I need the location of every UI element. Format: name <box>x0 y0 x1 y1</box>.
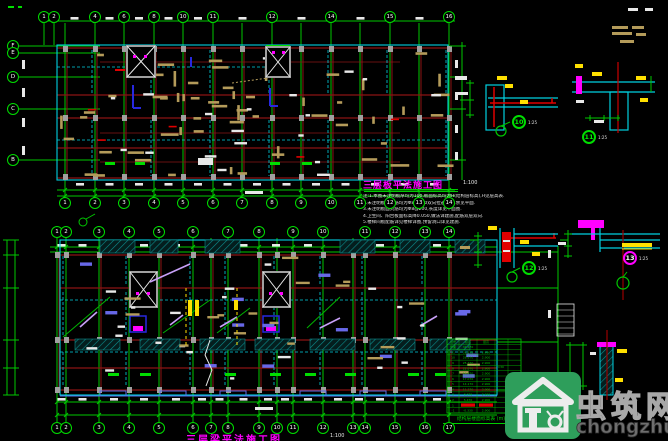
axis-bubble: 11 <box>207 11 219 23</box>
svg-text:层高: 层高 <box>483 339 489 344</box>
axis-bubble: 12 <box>384 197 396 209</box>
detail-bubble-13: 13 <box>623 251 637 265</box>
svg-text:8.370: 8.370 <box>464 393 473 397</box>
axis-bubble: 8 <box>266 197 278 209</box>
axis-bubble: 11 <box>354 197 366 209</box>
axis-bubble: 8 <box>253 226 265 238</box>
svg-text:25.770: 25.770 <box>463 361 474 365</box>
svg-text:2.900: 2.900 <box>482 377 491 381</box>
svg-text:4: 4 <box>452 387 454 391</box>
axis-bubble: 2 <box>60 422 72 434</box>
plan2-scale: 1:100 <box>330 433 344 439</box>
axis-bubble: 7 <box>222 226 234 238</box>
axis-bubble: 5 <box>153 422 165 434</box>
svg-text:28.670: 28.670 <box>463 356 474 360</box>
svg-text:2.900: 2.900 <box>482 409 491 413</box>
axis-bubble: 7 <box>236 197 248 209</box>
axis-bubble: 2 <box>89 197 101 209</box>
axis-bubble: 6 <box>187 226 199 238</box>
house-icon <box>505 372 581 439</box>
svg-text:17.070: 17.070 <box>463 377 474 381</box>
svg-text:5.470: 5.470 <box>464 398 473 402</box>
note-line: 4.卫生间、阳台板面标高降0.050,做法详建施,配筋双层双向. <box>363 214 568 221</box>
svg-text:层号: 层号 <box>450 339 456 344</box>
axis-bubble: 4 <box>123 226 135 238</box>
axis-bubble: 8 <box>222 422 234 434</box>
plan1-title-underline2 <box>364 191 458 192</box>
axis-bubble: 15 <box>384 11 396 23</box>
axis-bubble: 12 <box>266 11 278 23</box>
detail-scale: 1:25 <box>639 256 648 261</box>
svg-text:屋面: 屋面 <box>450 344 456 349</box>
svg-text:8: 8 <box>452 366 454 370</box>
plan1-scale: 1:100 <box>463 180 477 186</box>
detail-scale: 1:25 <box>538 266 547 271</box>
axis-bubble: 6 <box>187 422 199 434</box>
axis-bubble: 14 <box>325 11 337 23</box>
axis-bubble: 9 <box>287 226 299 238</box>
axis-bubble: 10 <box>317 226 329 238</box>
cad-canvas: 层号标高层高屋面34.4701131.5702.9001028.6702.900… <box>0 0 668 441</box>
axis-bubble: 12 <box>317 422 329 434</box>
axis-bubble: 6 <box>118 11 130 23</box>
axis-bubble: 4 <box>89 11 101 23</box>
svg-text:1: 1 <box>452 403 454 407</box>
svg-text:11: 11 <box>451 350 455 354</box>
svg-text:11.270: 11.270 <box>463 387 474 391</box>
svg-text:2.900: 2.900 <box>482 382 491 386</box>
axis-bubble: 6 <box>207 197 219 209</box>
svg-text:14.170: 14.170 <box>463 382 474 386</box>
plan2-title: 三层梁平法施工图 <box>186 431 282 441</box>
axis-bubble: 7 <box>205 422 217 434</box>
axis-bubble: 14 <box>443 226 455 238</box>
axis-bubble: 3 <box>118 197 130 209</box>
axis-bubble: 15 <box>389 422 401 434</box>
axis-bubble: 9 <box>253 422 265 434</box>
axis-bubble: 10 <box>325 197 337 209</box>
svg-text:2.900: 2.900 <box>482 361 491 365</box>
detail-scale: 1:25 <box>528 120 537 125</box>
watermark-site-url[interactable]: chongzhu.cn <box>576 417 668 438</box>
caption-text: 结构层楼面标高表 <box>457 417 495 422</box>
svg-text:2.900: 2.900 <box>482 398 491 402</box>
svg-text:19.970: 19.970 <box>463 372 474 376</box>
detail-scale: 1:25 <box>598 135 607 140</box>
svg-text:2.900: 2.900 <box>482 366 491 370</box>
svg-text:2.900: 2.900 <box>482 393 491 397</box>
axis-bubble: 3 <box>93 226 105 238</box>
axis-bubble: 17 <box>443 422 455 434</box>
detail-bubble-11: 11 <box>582 130 596 144</box>
note-line: 3.未注明板面负筋均为Φ8@200,长度详见平面图. <box>363 207 568 214</box>
svg-text:2.900: 2.900 <box>482 387 491 391</box>
axis-bubble: 16 <box>443 11 455 23</box>
svg-text:5: 5 <box>452 382 454 386</box>
axis-bubble: 8 <box>148 11 160 23</box>
axis-bubble: E <box>7 47 19 59</box>
svg-text:34.470: 34.470 <box>463 345 474 349</box>
axis-bubble: 11 <box>287 422 299 434</box>
svg-text:22.870: 22.870 <box>463 366 474 370</box>
detail-bubble-12: 12 <box>522 261 536 275</box>
chongzhu-logo[interactable] <box>505 372 581 439</box>
axis-bubble: 12 <box>389 226 401 238</box>
caption-unit: (m) <box>497 417 505 422</box>
svg-text:2.900: 2.900 <box>482 350 491 354</box>
axis-bubble: 10 <box>271 422 283 434</box>
svg-text:7: 7 <box>452 372 454 376</box>
axis-bubble: 5 <box>153 226 165 238</box>
svg-text:2.900: 2.900 <box>482 356 491 360</box>
svg-text:-1: -1 <box>452 409 455 413</box>
axis-bubble: 9 <box>295 197 307 209</box>
svg-text:9: 9 <box>452 361 454 365</box>
axis-bubble: 11 <box>359 226 371 238</box>
axis-bubble: D <box>7 71 19 83</box>
svg-text:2.900: 2.900 <box>482 372 491 376</box>
axis-bubble: 10 <box>177 11 189 23</box>
axis-bubble: 14 <box>443 197 455 209</box>
svg-text:2.570: 2.570 <box>464 403 473 407</box>
axis-bubble: 16 <box>419 422 431 434</box>
axis-bubble: 13 <box>413 197 425 209</box>
svg-text:标高: 标高 <box>465 339 471 344</box>
axis-bubble: B <box>7 154 19 166</box>
svg-text:10: 10 <box>451 356 455 360</box>
svg-text:2.900: 2.900 <box>482 403 491 407</box>
axis-bubble: 14 <box>359 422 371 434</box>
detail-bubble-10: 10 <box>512 115 526 129</box>
axis-bubble: 4 <box>148 197 160 209</box>
axis-bubble: 2 <box>60 226 72 238</box>
axis-bubble: 13 <box>347 422 359 434</box>
axis-bubble: C <box>7 103 19 115</box>
svg-text:6: 6 <box>452 377 454 381</box>
svg-text:2: 2 <box>452 398 454 402</box>
axis-bubble: 13 <box>419 226 431 238</box>
axis-bubble: 3 <box>93 422 105 434</box>
svg-text:-0.330: -0.330 <box>463 409 473 413</box>
axis-bubble: 4 <box>123 422 135 434</box>
plan1-title-underline <box>364 189 458 190</box>
svg-text:3: 3 <box>452 393 454 397</box>
svg-text:C30: C30 <box>498 365 504 369</box>
axis-bubble: 2 <box>48 11 60 23</box>
axis-bubble: 5 <box>177 197 189 209</box>
svg-text:31.570: 31.570 <box>463 350 474 354</box>
axis-bubble: 1 <box>59 197 71 209</box>
